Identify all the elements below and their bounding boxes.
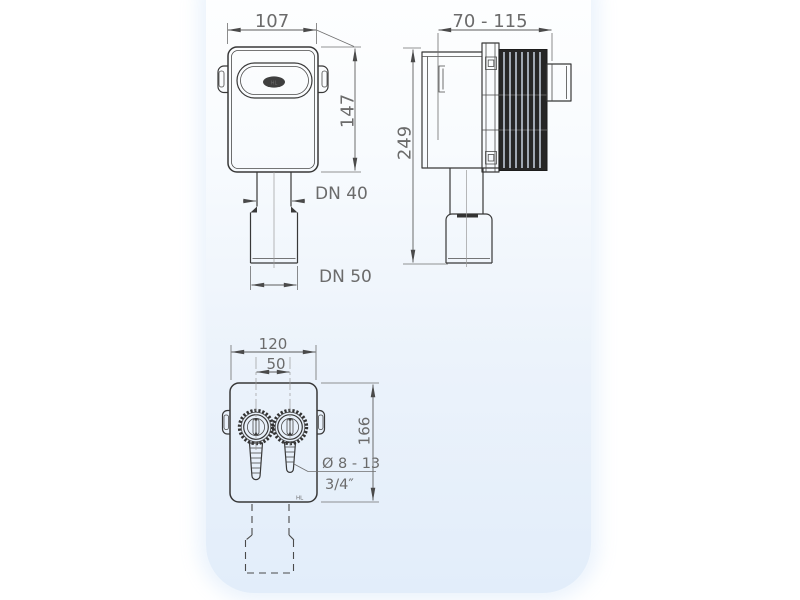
dim-port-spacing: 50 [257,355,290,373]
bottom-left-tab [223,411,231,435]
dim-label-249: 249 [395,126,416,160]
drawing-svg: HL 107 [0,0,800,600]
front-left-tab [218,66,228,93]
dim-dn40: DN 40 [243,184,368,204]
side-flange [482,43,499,172]
bottom-logo-text: HL [296,496,304,502]
dim-label-hose-diameter: Ø 8 - 13 [322,456,380,472]
bottom-view: HL 120 50 [223,335,381,575]
side-ribbed-section [499,50,547,171]
dim-label-dn50: DN 50 [319,267,372,287]
dim-label-50: 50 [266,355,285,373]
dim-front-width: 107 [228,11,355,47]
bottom-body [230,383,317,502]
side-lower-pipe [446,168,492,263]
side-view: 70 - 115 249 [395,11,572,267]
front-logo-text: HL [271,80,278,86]
front-right-tab [318,66,328,93]
dim-label-120: 120 [259,335,288,353]
dim-label-thread: 3/4″ [325,477,354,493]
dim-dn50: DN 50 [251,266,372,290]
dim-front-height: 147 [321,47,361,172]
dim-label-107: 107 [255,11,289,32]
bottom-right-tab [317,411,325,435]
brand-emblem: HL [237,63,312,98]
side-outlet-stub [547,64,571,101]
technical-drawing-canvas: HL 107 [0,0,800,600]
hidden-outlet-pipe [246,504,295,575]
dim-label-dn40: DN 40 [315,184,368,204]
dim-hose-callout: Ø 8 - 13 3/4″ [294,456,380,493]
front-view: HL 107 [218,11,372,290]
hose-nozzle-right [285,443,296,473]
dim-label-166: 166 [356,417,374,446]
dim-label-147: 147 [338,94,359,128]
dim-side-height: 249 [395,48,449,264]
dim-label-70-115: 70 - 115 [452,11,527,32]
